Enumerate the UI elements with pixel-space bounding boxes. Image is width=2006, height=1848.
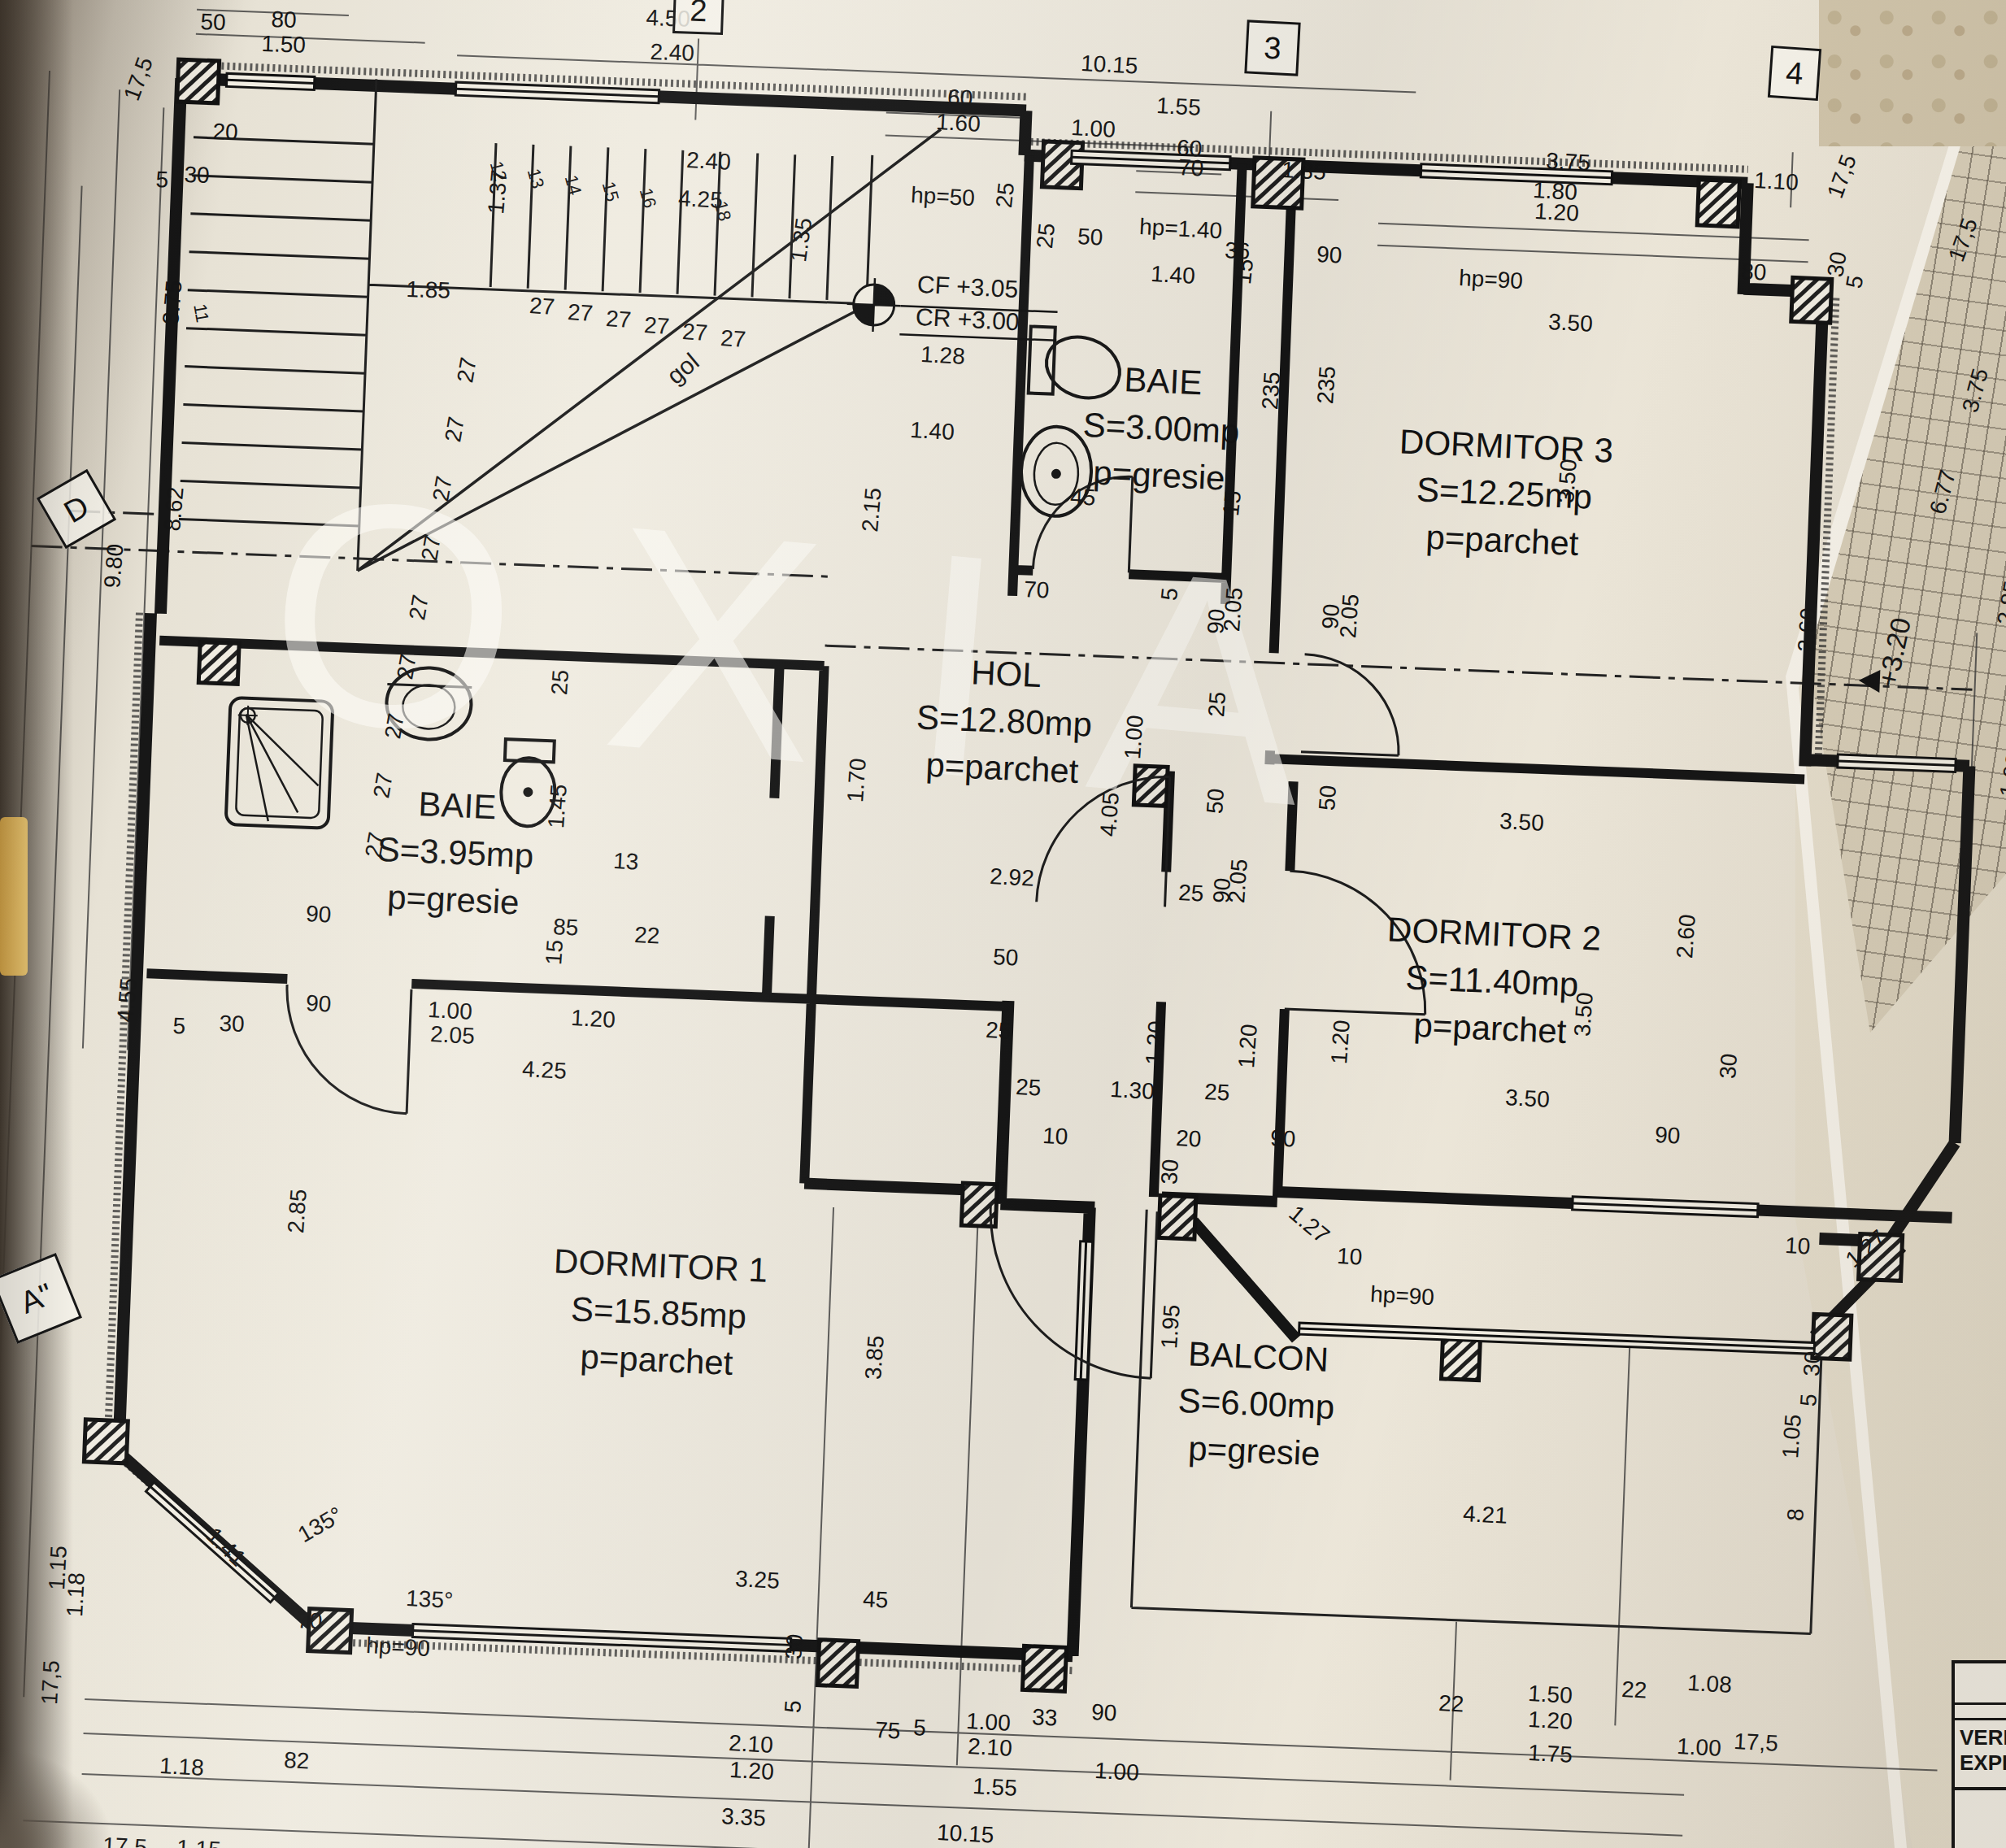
dimension-label: 5: [1797, 1393, 1821, 1407]
grid-bubble-3: 3: [1244, 20, 1300, 76]
dimension-label: 27: [406, 593, 433, 622]
dimension-label: 1.18: [159, 1755, 205, 1780]
dimension-label: 90: [1316, 243, 1343, 267]
dimension-label: 9.80: [101, 543, 128, 589]
dimension-label: 1.00: [1677, 1735, 1722, 1760]
dimension-label: 1.30: [1110, 1078, 1155, 1103]
dimension-label: 1.85: [406, 278, 450, 302]
dimension-label: 1.45: [545, 784, 571, 829]
dimension-label: 1.50: [1528, 1682, 1573, 1707]
dimension-label: 15: [1232, 258, 1257, 285]
dimension-label: 70: [1178, 156, 1205, 180]
dimension-label: 3.50: [1499, 810, 1545, 835]
dimension-label: 1.20: [1235, 1024, 1261, 1069]
dimension-label: 25: [1205, 691, 1229, 718]
dimension-label: 50: [200, 11, 226, 34]
dimension-label: 2.85: [285, 1189, 311, 1234]
dimension-label: 1.20: [1534, 200, 1580, 225]
dimension-label: 70: [1024, 578, 1051, 602]
dimension-label: 30: [184, 163, 210, 187]
dimension-label: 50: [1203, 788, 1228, 815]
room-floor: p=gresie: [1080, 449, 1238, 502]
dimension-label: 1.75: [1528, 1741, 1573, 1767]
dimension-label: 2.40: [686, 149, 732, 174]
room-name: BAIE: [1084, 354, 1242, 408]
stair-step-number: 11: [190, 302, 211, 324]
dimension-label: 235: [1259, 371, 1284, 411]
dimension-label: 10: [1042, 1124, 1069, 1149]
room-floor: p=gresie: [374, 873, 533, 927]
dimension-label: 27: [605, 307, 632, 332]
grid-bubble-2: 2: [672, 0, 725, 35]
dimension-label: 4.25: [522, 1058, 568, 1083]
dimension-label: 22: [634, 924, 661, 948]
dimension-label: 3.85: [862, 1335, 888, 1381]
dimension-label: 1.35: [1281, 159, 1327, 184]
dimension-label: 2.10: [968, 1735, 1013, 1760]
dimension-label: 1.00: [1094, 1759, 1140, 1785]
room-area: S=3.95mp: [376, 826, 535, 880]
dimension-label: 17,5: [102, 1834, 148, 1848]
dimension-label: 27: [442, 415, 468, 444]
dimension-label: 135°: [406, 1587, 454, 1612]
dimension-label: 10.15: [937, 1821, 994, 1847]
corner-shadow: [0, 1748, 114, 1848]
dimension-label: 10: [1337, 1245, 1364, 1269]
room-label: BALCONS=6.00mpp=gresie: [1175, 1330, 1338, 1478]
dimension-label: 2.60: [1795, 607, 1821, 653]
dimension-label: 25: [986, 1019, 1012, 1043]
dimension-label: 4.05: [1097, 792, 1123, 837]
dimension-label: 27: [681, 320, 708, 345]
stairs: [177, 72, 942, 593]
dimension-label: 3.75: [1546, 150, 1591, 175]
level-cr-label: CR +3.00: [915, 302, 1020, 337]
dimension-label: 27: [643, 314, 670, 338]
dimension-label: 22: [1621, 1678, 1648, 1702]
dimension-label: 5: [155, 168, 169, 192]
dimension-label: 1.00: [1121, 715, 1147, 760]
dimension-label: 85: [553, 915, 580, 940]
toilet2-tank: [1029, 327, 1055, 394]
room-floor: p=parchet: [913, 741, 1090, 795]
dimension-label: 5: [913, 1716, 927, 1740]
dimension-label: hp=50: [911, 184, 976, 210]
dimension-label: 2.05: [430, 1023, 476, 1048]
dimension-label: 80: [271, 8, 297, 32]
dimension-label: 1.60: [936, 111, 981, 136]
dimension-label: 50: [1316, 785, 1340, 811]
dimension-label: 1.40: [1151, 263, 1196, 288]
dimension-label: 27: [429, 474, 456, 503]
dimension-label: 235: [1314, 365, 1339, 405]
dimension-label: 5: [172, 1015, 186, 1038]
dimension-label: 27: [720, 327, 746, 351]
dimension-label: 27: [381, 711, 408, 741]
dimension-label: 1.18: [63, 1572, 89, 1618]
dimension-label: 2.40: [650, 41, 694, 65]
dimension-label: 25: [548, 669, 572, 696]
room-label: BAIES=3.95mpp=gresie: [374, 779, 537, 927]
room-label: HOLS=12.80mpp=parchet: [913, 646, 1094, 795]
dimension-label: hp=90: [366, 1634, 431, 1660]
dimension-label: 90: [306, 902, 333, 927]
dimension-label: 1.10: [1754, 169, 1799, 194]
dimension-label: 27: [454, 355, 481, 385]
dimension-label: 27: [529, 294, 555, 319]
dimension-label: 3.50: [1548, 311, 1594, 336]
dimension-label: 10: [1785, 1234, 1812, 1259]
dimension-label: 90: [1091, 1701, 1118, 1725]
dimension-label: 20: [212, 120, 238, 144]
dimension-label: 1.00: [1071, 116, 1116, 141]
dimension-label: 50: [1077, 225, 1104, 250]
room-label: DORMITOR 3S=12.25mpp=parchet: [1395, 418, 1614, 568]
dimension-label: 2.05: [1225, 859, 1251, 904]
dimension-label: 75: [875, 1719, 902, 1743]
dimension-label: 5: [781, 1699, 805, 1713]
dimension-label: 50: [993, 946, 1020, 970]
dimension-label: 1.20: [729, 1759, 775, 1784]
dimension-label: 22: [1438, 1692, 1465, 1716]
dimension-label: 25: [1178, 881, 1205, 906]
room-name: BAIE: [378, 779, 537, 833]
dimension-label: 25: [1204, 1081, 1231, 1105]
dimension-label: 45: [863, 1588, 890, 1612]
dimension-label: 30: [1800, 1350, 1825, 1377]
dimension-label: 1.00: [966, 1710, 1012, 1735]
dimension-label: hp=90: [1459, 267, 1524, 293]
dimension-label: 70: [297, 1609, 324, 1633]
dimension-label: 1.40: [910, 419, 955, 444]
dimension-label: 17,5: [1734, 1730, 1779, 1755]
dimension-label: 2.10: [729, 1732, 774, 1757]
dimension-label: 1.50: [261, 33, 306, 57]
dimension-label: 2.15: [859, 487, 886, 533]
dimension-label: 1.55: [973, 1775, 1018, 1800]
dimension-label: 20: [1176, 1127, 1203, 1151]
dimension-label: 90: [1655, 1124, 1682, 1148]
dimension-label: 3.50: [1505, 1086, 1551, 1111]
room-area: S=3.00mp: [1082, 402, 1241, 455]
dimension-label: 1.70: [844, 758, 870, 803]
dimension-label: 30: [1158, 1159, 1182, 1185]
dimension-label: 27: [567, 301, 594, 325]
dimension-label: 17,5: [38, 1660, 63, 1706]
dimension-label: 90: [306, 992, 333, 1016]
dimension-label: 4.21: [1463, 1502, 1508, 1528]
dimension-label: 4.55: [114, 977, 141, 1024]
photo-of-floor-plan: OXIA 50801.502017,55301.851.372.404.251.…: [0, 0, 2006, 1848]
dimension-label: 3.75: [159, 280, 186, 326]
dimension-label: hp=90: [1370, 1283, 1435, 1309]
dimension-label: 2.92: [990, 865, 1035, 890]
dimension-label: 33: [1032, 1706, 1059, 1730]
bookmark-sliver: [0, 817, 28, 976]
dimension-label: 8: [1784, 1507, 1808, 1521]
dimension-label: 25: [1016, 1076, 1042, 1100]
dimension-label: 1.20: [1528, 1708, 1573, 1733]
dimension-label: 15: [542, 939, 567, 966]
room-floor: p=parchet: [1382, 1000, 1598, 1056]
title-block-verif: VERIF: [1960, 1725, 2006, 1750]
room-label: DORMITOR 1S=15.85mpp=parchet: [549, 1237, 768, 1388]
dimension-label: 1.28: [920, 343, 966, 368]
dimension-label: 82: [284, 1749, 311, 1773]
dimension-label: 5: [1158, 587, 1181, 602]
level-cf-label: CF +3.05: [916, 269, 1019, 305]
dimension-label: 1.15: [176, 1837, 222, 1848]
dimension-label: 1.20: [1328, 1020, 1354, 1065]
dimension-label: 1.08: [1687, 1672, 1733, 1697]
dimension-label: 25: [993, 181, 1018, 209]
dimension-label: 27: [418, 533, 445, 563]
title-block: VERIF EXPER: [1952, 1660, 2006, 1848]
dimension-label: 1.55: [1156, 94, 1202, 120]
dimension-label: 2.60: [1673, 914, 1699, 959]
dimension-label: 2.05: [1337, 594, 1363, 639]
dimension-label: 8.62: [161, 486, 188, 533]
room-label: BAIES=3.00mpp=gresie: [1080, 354, 1242, 502]
room-label: DORMITOR 2S=11.40mpp=parchet: [1382, 906, 1602, 1056]
dimension-label: 10.15: [1081, 52, 1138, 78]
room-floor: p=gresie: [1175, 1424, 1334, 1478]
grid-bubble-4: 4: [1768, 46, 1821, 101]
room-name: HOL: [917, 646, 1094, 701]
dimension-label: 90: [1270, 1127, 1297, 1151]
room-area: S=12.80mp: [916, 694, 1093, 748]
dimension-label: 30: [1717, 1053, 1741, 1080]
room-floor: p=parchet: [549, 1332, 764, 1388]
dimension-label: 2.05: [1221, 587, 1247, 633]
title-block-exper: EXPER: [1960, 1750, 2006, 1775]
shower-tray: [226, 698, 333, 828]
room-name: BALCON: [1179, 1330, 1338, 1384]
dimension-label: 1.20: [571, 1007, 616, 1032]
dimension-label: 27: [394, 652, 420, 681]
dimension-label: 13: [613, 850, 640, 874]
dimension-label: 3.35: [721, 1805, 767, 1830]
dimension-label: 25: [1033, 222, 1059, 250]
dimension-label: 1.00: [428, 998, 473, 1024]
dimension-label: 60: [947, 86, 974, 111]
room-floor: p=parchet: [1395, 512, 1610, 568]
dimension-label: 30: [219, 1012, 245, 1036]
dimension-label: hp=1.40: [1139, 215, 1223, 242]
dimension-label: 30: [782, 1633, 807, 1660]
dimension-label: 1.20: [1142, 1020, 1168, 1066]
room-area: S=6.00mp: [1177, 1377, 1336, 1431]
dimension-label: 80: [1741, 260, 1768, 285]
dimension-label: 3.25: [735, 1568, 781, 1593]
dimension-label: 1.05: [1779, 1414, 1805, 1459]
